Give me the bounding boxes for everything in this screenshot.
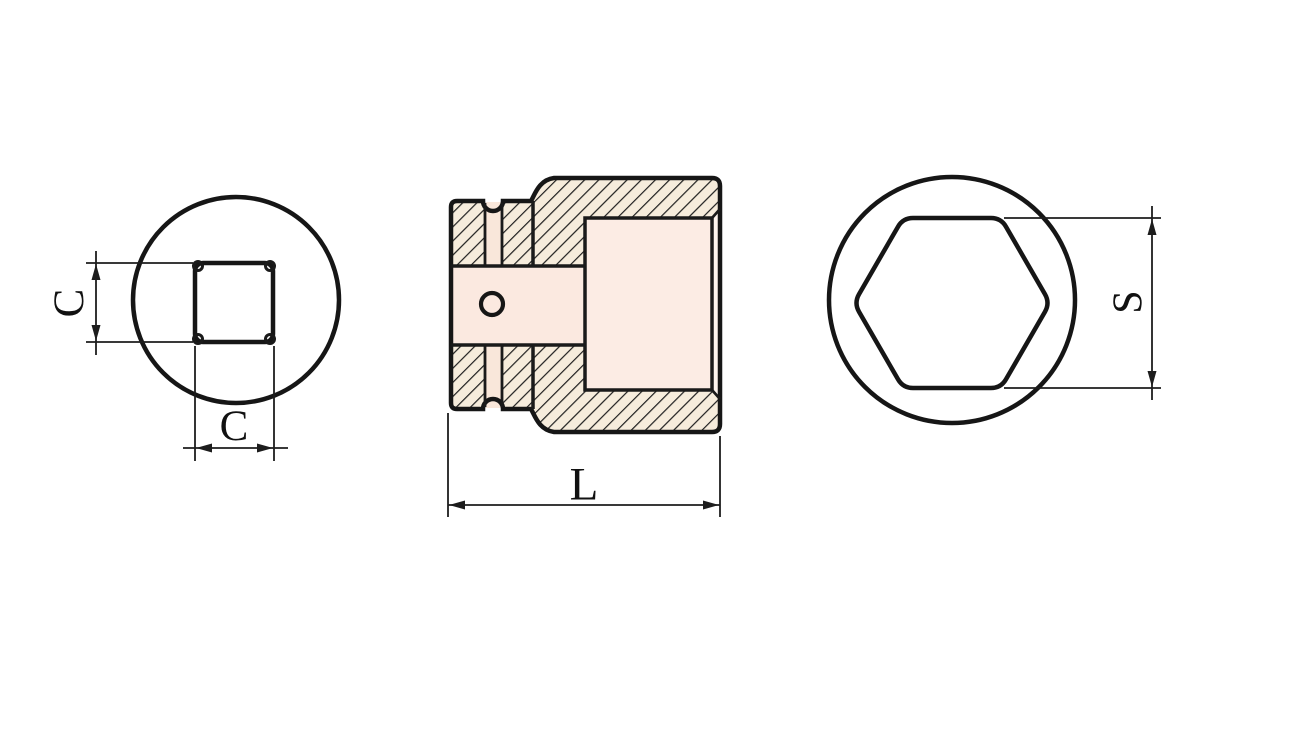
square-drive-bore xyxy=(451,266,585,345)
front-view-body-circle xyxy=(133,197,339,403)
drawing-page: C C xyxy=(0,0,1304,744)
arrowhead-left xyxy=(449,501,465,510)
dimension-label-c-width: C xyxy=(220,403,249,450)
dimension-label-s: S xyxy=(1106,290,1152,313)
dimension-hex-across-flats: S xyxy=(1004,206,1161,400)
dimension-square-height: C xyxy=(46,251,193,355)
arrowhead-right xyxy=(257,444,273,453)
hex-opening xyxy=(857,218,1048,388)
section-view: L xyxy=(448,178,720,517)
dimension-square-width: C xyxy=(183,346,288,461)
dimension-label-c-height: C xyxy=(46,289,93,318)
front-view: C C xyxy=(46,197,339,461)
square-drive-hole xyxy=(195,263,273,342)
arrowhead-down xyxy=(1148,371,1157,387)
dimension-label-l: L xyxy=(570,458,599,510)
arrowhead-down xyxy=(92,325,101,341)
arrowhead-up xyxy=(1148,219,1157,235)
hex-recess-cavity xyxy=(585,218,712,390)
arrowhead-right xyxy=(703,501,719,510)
technical-drawing-canvas: C C xyxy=(0,0,1304,744)
arrowhead-left xyxy=(196,444,212,453)
rear-view: S xyxy=(829,177,1161,423)
arrowhead-up xyxy=(92,264,101,280)
square-corner-reliefs xyxy=(194,262,275,344)
